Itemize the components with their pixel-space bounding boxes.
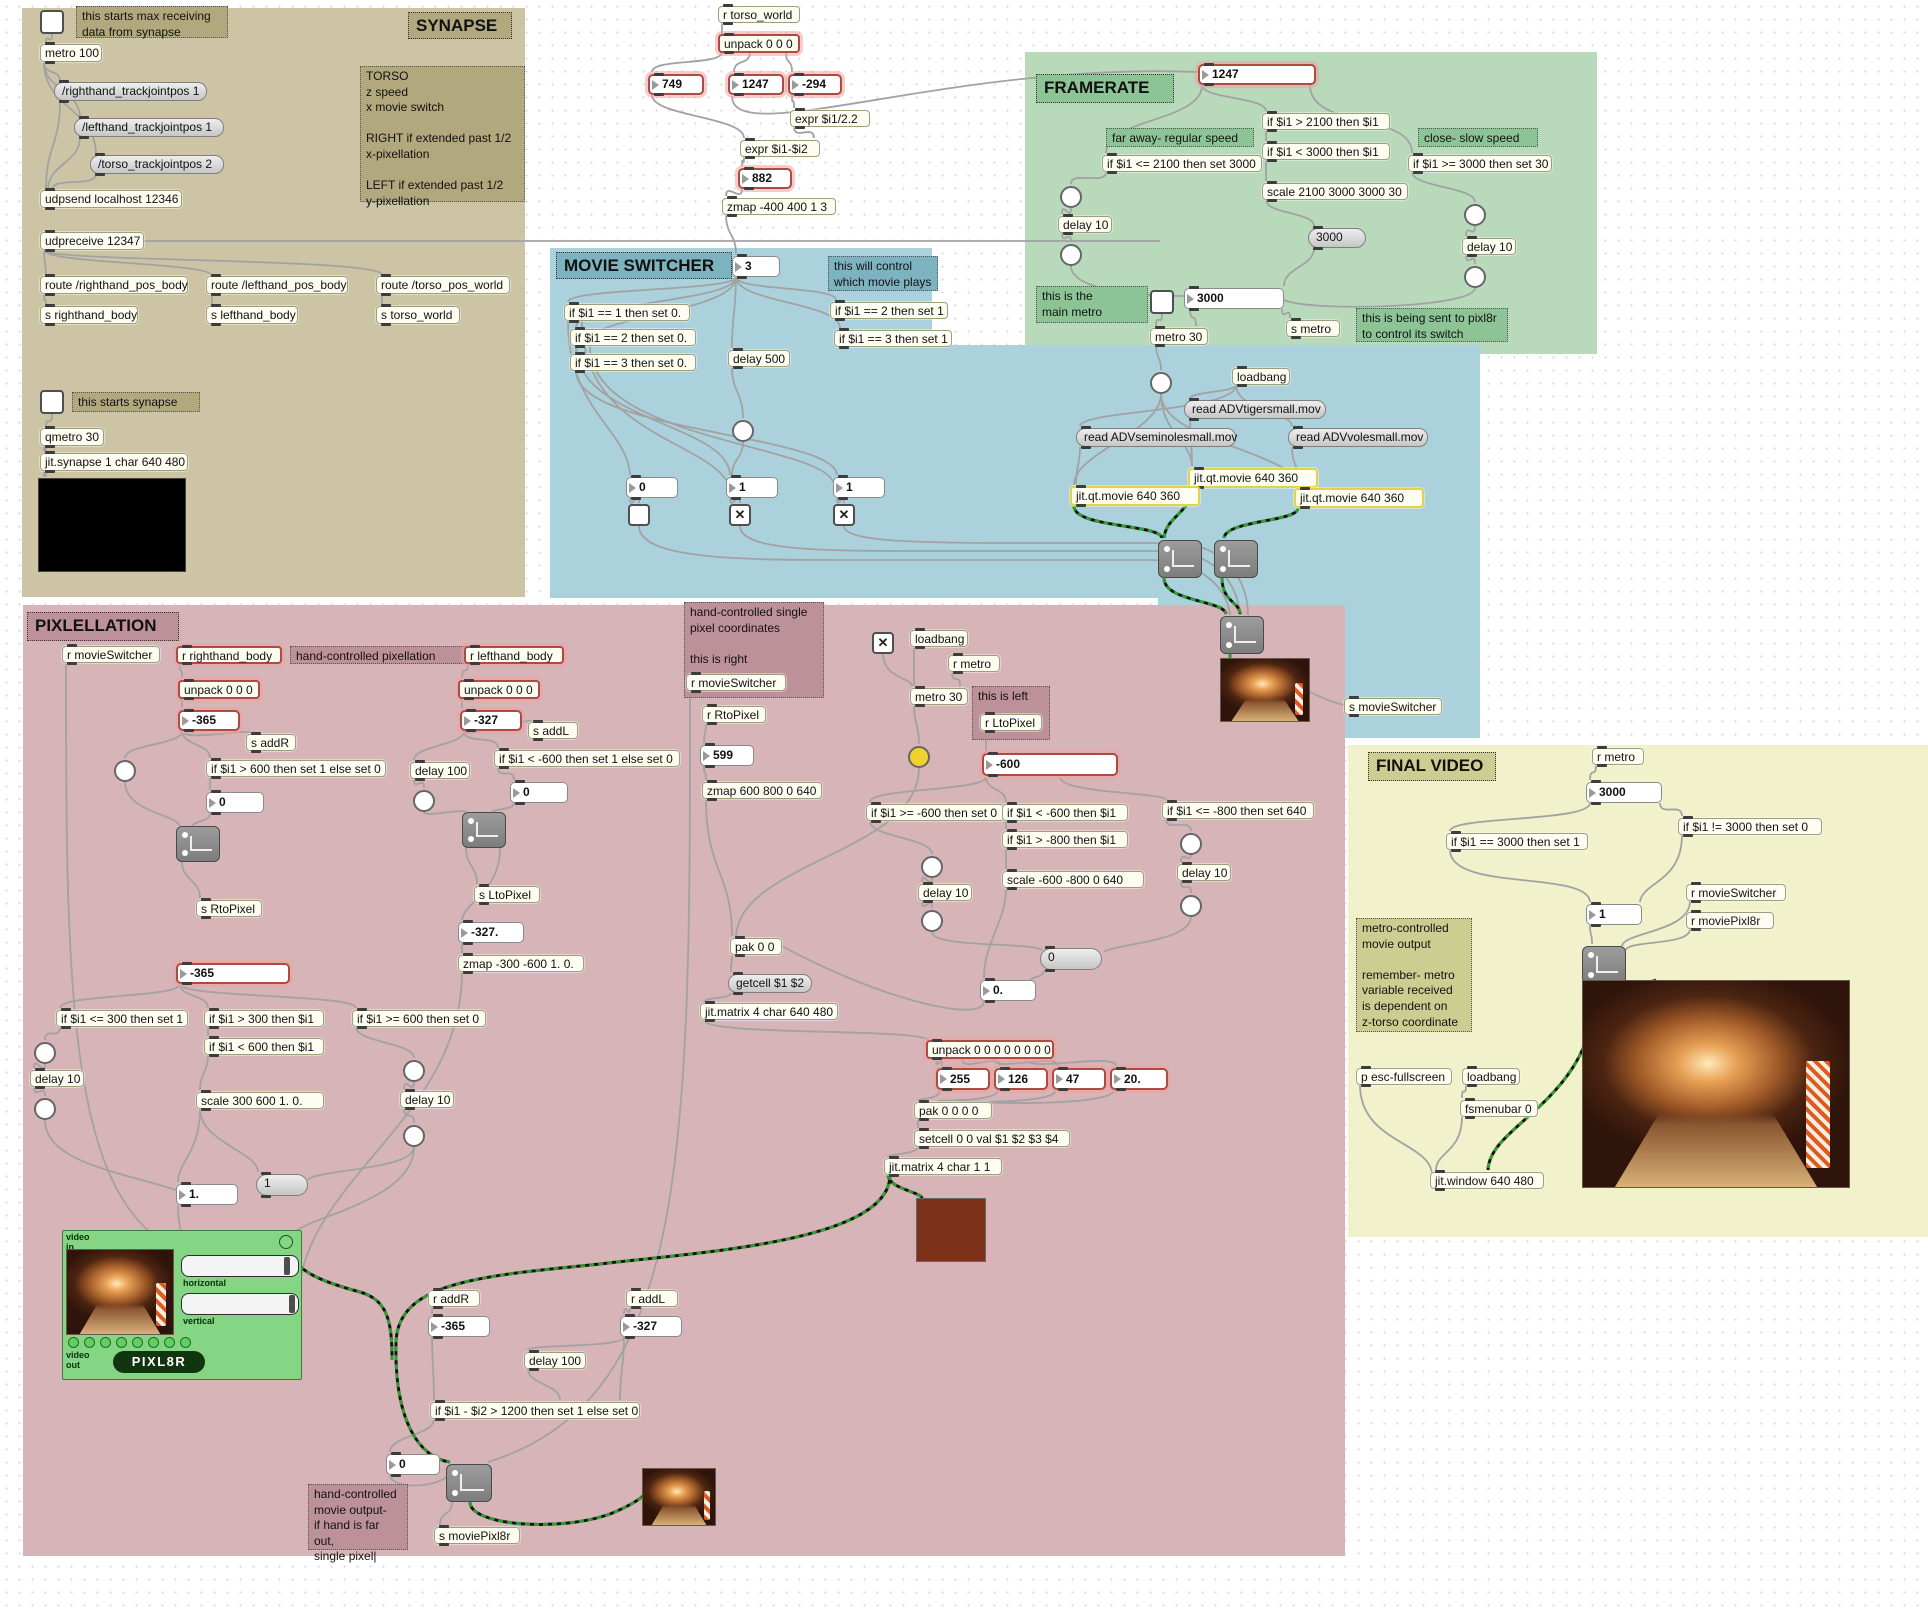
obj-route-torso[interactable]: route /torso_pos_world — [376, 276, 510, 294]
obj-fsmenubar[interactable]: fsmenubar 0 — [1460, 1100, 1538, 1117]
obj-delay10-b[interactable]: delay 10 — [400, 1091, 454, 1108]
num-599[interactable]: 599 — [700, 745, 754, 766]
obj-if-ge600[interactable]: if $i1 >= 600 then set 0 — [352, 1010, 486, 1027]
obj-zmap-400[interactable]: zmap -400 400 1 3 — [722, 198, 836, 215]
num-b[interactable]: 47 — [1052, 1068, 1106, 1090]
number-value: 0. — [993, 983, 1003, 998]
obj-delay10-fr-left[interactable]: delay 10 — [1058, 216, 1112, 233]
number-triangle-icon — [983, 986, 990, 996]
obj-pak-4[interactable]: pak 0 0 0 0 — [914, 1102, 992, 1119]
num-torso-z[interactable]: -294 — [788, 74, 842, 95]
number-value: 749 — [662, 77, 682, 92]
obj-s-movieswitcher[interactable]: s movieSwitcher — [1344, 698, 1442, 715]
num-torso-x[interactable]: 749 — [648, 74, 704, 95]
obj-s-lefthand-body[interactable]: s lefthand_body — [206, 306, 298, 324]
patcher-canvas: this starts max receiving data from syna… — [0, 0, 1928, 1608]
number-value: 882 — [752, 171, 772, 186]
obj-delay-500[interactable]: delay 500 — [728, 350, 790, 367]
pixl8r-brand-badge[interactable]: PIXL8R — [113, 1351, 205, 1373]
number-value: -327. — [471, 925, 498, 940]
number-value: 255 — [950, 1072, 970, 1087]
obj-delay10-fr-right[interactable]: delay 10 — [1462, 238, 1516, 255]
led-icon — [68, 1337, 79, 1348]
comment-main-metro: this is the main metro — [1036, 286, 1148, 323]
obj-r-movieswitcher-fv[interactable]: r movieSwitcher — [1686, 884, 1786, 901]
bang-circle-icon — [403, 1060, 425, 1082]
number-value: 1247 — [742, 77, 769, 92]
bang-px-1[interactable] — [114, 760, 136, 782]
bang-circle-icon — [114, 760, 136, 782]
obj-expr-div[interactable]: expr $i1/2.2 — [790, 110, 870, 127]
num-movie1-state[interactable]: 0 — [626, 477, 678, 498]
obj-p-esc-fullscreen[interactable]: p esc-fullscreen — [1356, 1068, 1452, 1085]
number-value: 599 — [713, 748, 733, 763]
number-triangle-icon — [986, 760, 993, 770]
msg-getcell[interactable]: getcell $1 $2 — [728, 974, 812, 993]
gate-right[interactable] — [176, 826, 220, 862]
num-lefthand-x[interactable]: -327 — [460, 710, 522, 731]
number-value: -365 — [441, 1319, 465, 1334]
obj-expr-sub[interactable]: expr $i1-$i2 — [740, 140, 820, 157]
bang-circle-icon — [34, 1042, 56, 1064]
obj-r-moviepixl8r-fv[interactable]: r moviePixl8r — [1686, 912, 1774, 929]
switch-movies-2[interactable] — [1214, 540, 1258, 578]
title-movie-switcher: MOVIE SWITCHER — [556, 252, 732, 279]
number-value: 47 — [1066, 1072, 1079, 1087]
obj-delay-100-b[interactable]: delay 100 — [524, 1352, 586, 1369]
obj-r-movieswitcher-px[interactable]: r movieSwitcher — [62, 646, 160, 663]
led-icon — [132, 1337, 143, 1348]
number-value: 1 — [1599, 907, 1606, 922]
toggle-start-max[interactable] — [40, 10, 64, 34]
pixl8r-horizontal-slider[interactable] — [181, 1255, 299, 1277]
bang-circle-icon — [1060, 244, 1082, 266]
num-m365-wide[interactable]: -365 — [176, 963, 290, 984]
obj-if-gt2100[interactable]: if $i1 > 2100 then $i1 — [1262, 113, 1390, 130]
obj-udpsend[interactable]: udpsend localhost 12346 — [40, 190, 182, 208]
msg-3000-pill[interactable]: 3000 — [1308, 228, 1366, 248]
number-triangle-icon — [792, 80, 799, 90]
number-value: 1 — [739, 480, 746, 495]
obj-if-le300[interactable]: if $i1 <= 300 then set 1 — [56, 1010, 188, 1027]
number-triangle-icon — [1202, 70, 1209, 80]
gate-route-icon — [460, 1474, 484, 1491]
comment-starts-synapse: this starts synapse — [72, 392, 200, 412]
msg-read-voles[interactable]: read ADVvolesmall.mov — [1288, 428, 1428, 447]
num-metro-rate[interactable]: 3000 — [1184, 288, 1284, 309]
number-value: 0 — [399, 1457, 406, 1472]
led-icon — [100, 1337, 111, 1348]
obj-r-movieswitcher-2[interactable]: r movieSwitcher — [686, 674, 786, 691]
number-triangle-icon — [729, 483, 736, 493]
obj-s-addr[interactable]: s addR — [246, 734, 296, 751]
num-metro-fv[interactable]: 3000 — [1586, 782, 1662, 803]
gate-route-icon — [1228, 550, 1250, 567]
obj-loadbang-movies[interactable]: loadbang — [1232, 368, 1290, 385]
swatch-pixel-color[interactable] — [916, 1198, 986, 1262]
obj-delay10-c[interactable]: delay 10 — [918, 884, 972, 901]
bang-circle-icon — [921, 910, 943, 932]
video-synapse-black — [38, 478, 186, 572]
number-triangle-icon — [735, 262, 742, 272]
number-triangle-icon — [629, 483, 636, 493]
number-value: 3000 — [1599, 785, 1626, 800]
bang-circle-icon — [732, 420, 754, 442]
number-value: 1 — [846, 480, 853, 495]
obj-qtmovie-3[interactable]: jit.qt.movie 640 360 — [1294, 488, 1424, 508]
number-triangle-icon — [1589, 910, 1596, 920]
num-r[interactable]: 255 — [936, 1068, 990, 1090]
obj-metro-30-px[interactable]: metro 30 — [910, 688, 968, 705]
pixl8r-device[interactable]: video inhorizontalverticalvideo outPIXL8… — [62, 1230, 302, 1380]
toggle-check-icon: ✕ — [839, 507, 850, 523]
obj-metro-30-fr[interactable]: metro 30 — [1150, 328, 1208, 345]
comment-hand-pixellation: hand-controlled pixellation — [290, 646, 476, 664]
number-triangle-icon — [464, 716, 471, 726]
pixl8r-video-in-preview[interactable] — [66, 1249, 174, 1335]
number-triangle-icon — [209, 798, 216, 808]
number-value: 1. — [189, 1187, 199, 1202]
obj-if-gt600[interactable]: if $i1 > 600 then set 1 else set 0 — [206, 760, 386, 777]
switch-movies-3[interactable] — [1220, 616, 1264, 654]
number-value: -365 — [190, 966, 214, 981]
pixl8r-vertical-slider[interactable] — [181, 1293, 299, 1315]
num-torso-y[interactable]: 1247 — [728, 74, 784, 95]
obj-s-rtopixel[interactable]: s RtoPixel — [196, 900, 262, 917]
num-m327-dot[interactable]: -327. — [458, 922, 524, 943]
comment-far-away: far away- regular speed — [1106, 128, 1254, 147]
bang-circle-icon — [1060, 186, 1082, 208]
bang-circle-icon — [921, 856, 943, 878]
obj-r-righthand[interactable]: r righthand_body — [176, 646, 282, 664]
number-triangle-icon — [179, 1190, 186, 1200]
obj-qmetro-30[interactable]: qmetro 30 — [40, 428, 104, 446]
number-triangle-icon — [1589, 788, 1596, 798]
toggle-start-synapse[interactable] — [40, 390, 64, 414]
bang-px-2[interactable] — [413, 790, 435, 812]
obj-if-gtm800[interactable]: if $i1 > -800 then $i1 — [1002, 831, 1128, 848]
obj-if-gem600[interactable]: if $i1 >= -600 then set 0 — [866, 804, 1004, 821]
bang-px-10[interactable] — [1180, 895, 1202, 917]
bang-ms[interactable] — [732, 420, 754, 442]
obj-jitwindow[interactable]: jit.window 640 480 — [1430, 1172, 1544, 1189]
comment-close-slow: close- slow speed — [1418, 128, 1538, 147]
obj-setcell[interactable]: setcell 0 0 val $1 $2 $3 $4 — [914, 1130, 1070, 1147]
number-value: 0 — [523, 785, 530, 800]
number-triangle-icon — [1114, 1074, 1121, 1084]
obj-r-torso-world[interactable]: r torso_world — [718, 6, 800, 23]
obj-unpack-8[interactable]: unpack 0 0 0 0 0 0 0 0 — [926, 1040, 1054, 1059]
obj-route-righthand[interactable]: route /righthand_pos_body — [40, 276, 188, 294]
num-gate-r[interactable]: 0 — [206, 792, 264, 813]
obj-if-eq2-set1[interactable]: if $i1 == 2 then set 1 — [830, 302, 948, 319]
number-value: 3000 — [1197, 291, 1224, 306]
num-gate-fv[interactable]: 1 — [1586, 904, 1642, 925]
number-value: -600 — [996, 757, 1020, 772]
comment-metro-output: metro-controlled movie output remember- … — [1356, 918, 1472, 1032]
bang-circle-icon — [1180, 895, 1202, 917]
obj-loadbang-px[interactable]: loadbang — [910, 630, 968, 647]
obj-r-lefthand[interactable]: r lefthand_body — [464, 646, 564, 664]
bang-circle-icon — [908, 746, 930, 768]
number-triangle-icon — [389, 1460, 396, 1470]
bang-px-7[interactable] — [921, 856, 943, 878]
obj-loadbang-fv[interactable]: loadbang — [1462, 1068, 1520, 1085]
toggle-movie1[interactable] — [628, 504, 650, 526]
number-triangle-icon — [180, 969, 187, 979]
obj-if-ltm600-else[interactable]: if $i1 < -600 then set 1 else set 0 — [494, 750, 680, 767]
number-triangle-icon — [940, 1074, 947, 1084]
number-triangle-icon — [732, 80, 739, 90]
msg-pill-0[interactable]: 0 — [1040, 948, 1102, 970]
gate-route-icon — [1172, 550, 1194, 567]
obj-if-eq3000[interactable]: if $i1 == 3000 then set 1 — [1446, 833, 1588, 850]
obj-if-lt3000[interactable]: if $i1 < 3000 then $i1 — [1262, 143, 1390, 160]
obj-delay-100-a[interactable]: delay 100 — [410, 762, 470, 779]
bang-yellow[interactable] — [908, 746, 930, 768]
obj-scale-300[interactable]: scale 300 600 1. 0. — [196, 1092, 324, 1109]
gate-route-icon — [476, 822, 498, 837]
num-framerate-z[interactable]: 1247 — [1198, 64, 1316, 85]
number-triangle-icon — [998, 1074, 1005, 1084]
number-triangle-icon — [182, 716, 189, 726]
slider-thumb[interactable] — [289, 1295, 295, 1313]
num-m600-wide[interactable]: -600 — [982, 753, 1118, 776]
number-value: 126 — [1008, 1072, 1028, 1087]
bang-px-9[interactable] — [1180, 833, 1202, 855]
obj-unpack-right[interactable]: unpack 0 0 0 — [458, 680, 540, 699]
obj-r-addl[interactable]: r addL — [626, 1290, 678, 1307]
obj-if-eq3-set0[interactable]: if $i1 == 3 then set 0. — [570, 354, 696, 371]
obj-s-addl[interactable]: s addL — [528, 722, 578, 739]
num-1-dot[interactable]: 1. — [176, 1184, 238, 1205]
obj-s-ltopixel[interactable]: s LtoPixel — [474, 886, 540, 903]
comment-torso-notes: TORSO z speed x movie switch RIGHT if ex… — [360, 66, 525, 202]
number-triangle-icon — [742, 174, 749, 184]
title-final-video: FINAL VIDEO — [1368, 752, 1496, 781]
num-addr[interactable]: -365 — [428, 1316, 490, 1337]
bang-px-5[interactable] — [403, 1060, 425, 1082]
title-pixlellation: PIXLELLATION — [27, 612, 179, 641]
led-icon — [164, 1337, 175, 1348]
obj-scale-2100[interactable]: scale 2100 3000 3000 30 — [1262, 183, 1408, 200]
bang-px-8[interactable] — [921, 910, 943, 932]
led-icon — [180, 1337, 191, 1348]
obj-pak-2[interactable]: pak 0 0 — [730, 938, 782, 955]
bang-circle-icon — [413, 790, 435, 812]
gate-left[interactable] — [462, 812, 506, 848]
bang-px-3[interactable] — [34, 1042, 56, 1064]
video-movie-preview — [1220, 658, 1310, 722]
bang-movies[interactable] — [1150, 372, 1172, 394]
obj-udpreceive[interactable]: udpreceive 12347 — [40, 232, 144, 250]
gate-final[interactable] — [1582, 946, 1626, 984]
obj-r-metro-fv[interactable]: r metro — [1592, 748, 1644, 765]
bang-fr-1[interactable] — [1060, 186, 1082, 208]
msg-torso-trackjointpos[interactable]: /torso_trackjointpos 2 — [90, 155, 224, 174]
comment-this-is-left: this is left — [972, 686, 1050, 740]
obj-if-gt300[interactable]: if $i1 > 300 then $i1 — [204, 1010, 324, 1027]
obj-s-torso-world[interactable]: s torso_world — [376, 306, 460, 324]
obj-if-eq3-set1[interactable]: if $i1 == 3 then set 1 — [834, 330, 952, 347]
bang-px-4[interactable] — [34, 1098, 56, 1120]
number-value: 3 — [745, 259, 752, 274]
obj-if-sub-1200[interactable]: if $i1 - $i2 > 1200 then set 1 else set … — [430, 1402, 640, 1419]
obj-jitmatrix-640[interactable]: jit.matrix 4 char 640 480 — [700, 1003, 838, 1020]
msg-lefthand-trackjointpos[interactable]: /lefthand_trackjointpos 1 — [74, 118, 224, 137]
num-gate-l[interactable]: 0 — [510, 782, 568, 803]
number-value: 1247 — [1212, 67, 1239, 82]
bang-circle-icon — [1150, 372, 1172, 394]
obj-qtmovie-2[interactable]: jit.qt.movie 640 360 — [1070, 486, 1200, 506]
gate-bottom[interactable] — [446, 1464, 492, 1502]
obj-r-rtopixel[interactable]: r RtoPixel — [702, 706, 766, 723]
bang-px-6[interactable] — [403, 1125, 425, 1147]
bang-circle-icon — [1464, 266, 1486, 288]
toggle-check-icon: ✕ — [735, 507, 746, 523]
msg-pill-1[interactable]: 1 — [256, 1174, 308, 1196]
toggle-check-icon: ✕ — [878, 635, 889, 651]
obj-if-eq2-set0[interactable]: if $i1 == 2 then set 0. — [570, 329, 696, 346]
led-icon — [148, 1337, 159, 1348]
num-g[interactable]: 126 — [994, 1068, 1048, 1090]
toggle-movie2[interactable]: ✕ — [729, 504, 751, 526]
toggle-main-metro[interactable] — [1150, 290, 1174, 314]
obj-if-eq1-set0[interactable]: if $i1 == 1 then set 0. — [564, 304, 690, 321]
obj-if-ge3000[interactable]: if $i1 >= 3000 then set 30 — [1408, 155, 1552, 172]
video-pixl8r-preview — [642, 1468, 716, 1526]
bang-circle-icon — [34, 1098, 56, 1120]
comment-starts-max: this starts max receiving data from syna… — [76, 6, 228, 38]
led-icon — [84, 1337, 95, 1348]
obj-if-lem800[interactable]: if $i1 <= -800 then set 640 — [1162, 802, 1314, 819]
obj-jit-synapse[interactable]: jit.synapse 1 char 640 480 — [40, 453, 188, 471]
obj-zmap-left[interactable]: zmap -300 -600 1. 0. — [458, 955, 584, 972]
obj-jitmatrix-11[interactable]: jit.matrix 4 char 1 1 — [884, 1158, 1002, 1175]
switch-movies-1[interactable] — [1158, 540, 1202, 578]
bang-fr-4[interactable] — [1464, 266, 1486, 288]
pixl8r-vertical-label: vertical — [183, 1317, 215, 1327]
number-triangle-icon — [703, 751, 710, 761]
obj-s-righthand-body[interactable]: s righthand_body — [40, 306, 138, 324]
number-triangle-icon — [431, 1322, 438, 1332]
num-a[interactable]: 20. — [1110, 1068, 1168, 1090]
led-icon — [116, 1337, 127, 1348]
obj-s-metro[interactable]: s metro — [1286, 320, 1340, 337]
msg-read-tigers[interactable]: read ADVtigersmall.mov — [1184, 400, 1326, 419]
obj-unpack-3[interactable]: unpack 0 0 0 — [718, 34, 800, 53]
pixl8r-led-row — [68, 1337, 191, 1348]
number-value: -294 — [802, 77, 826, 92]
bang-fr-2[interactable] — [1060, 244, 1082, 266]
msg-read-seminoles[interactable]: read ADVseminolesmall.mov — [1076, 428, 1236, 447]
number-triangle-icon — [836, 483, 843, 493]
num-righthand-x[interactable]: -365 — [178, 710, 240, 731]
number-triangle-icon — [1187, 294, 1194, 304]
pixl8r-outlet-icon — [279, 1235, 293, 1249]
number-triangle-icon — [623, 1322, 630, 1332]
num-movie-select[interactable]: 3 — [732, 256, 780, 277]
number-triangle-icon — [513, 788, 520, 798]
title-synapse: SYNAPSE — [408, 12, 512, 39]
msg-righthand-trackjointpos[interactable]: /righthand_trackjointpos 1 — [54, 82, 207, 101]
obj-r-ltopixel[interactable]: r LtoPixel — [980, 714, 1042, 731]
obj-delay10-a[interactable]: delay 10 — [30, 1070, 84, 1087]
number-value: 0 — [639, 480, 646, 495]
number-triangle-icon — [652, 80, 659, 90]
obj-route-lefthand[interactable]: route /lefthand_pos_body — [206, 276, 348, 294]
gate-route-icon — [190, 836, 212, 851]
toggle-movie3[interactable]: ✕ — [833, 504, 855, 526]
gate-route-icon — [1234, 626, 1256, 643]
number-value: 0 — [219, 795, 226, 810]
obj-unpack-left[interactable]: unpack 0 0 0 — [178, 680, 260, 699]
bang-circle-icon — [1180, 833, 1202, 855]
obj-if-ltm600[interactable]: if $i1 < -600 then $i1 — [1002, 804, 1128, 821]
number-triangle-icon — [461, 928, 468, 938]
obj-if-lt600[interactable]: if $i1 < 600 then $i1 — [204, 1038, 324, 1055]
number-value: -327 — [474, 713, 498, 728]
number-value: 20. — [1124, 1072, 1141, 1087]
bang-fr-3[interactable] — [1464, 204, 1486, 226]
comment-sent-pixl8r: this is being sent to pixl8r to control … — [1356, 308, 1508, 342]
num-882[interactable]: 882 — [738, 168, 792, 189]
toggle-px[interactable]: ✕ — [872, 632, 894, 654]
obj-if-le2100[interactable]: if $i1 <= 2100 then set 3000 — [1102, 155, 1262, 172]
obj-qtmovie-1[interactable]: jit.qt.movie 640 360 — [1188, 468, 1318, 488]
number-value: -365 — [192, 713, 216, 728]
num-movie2-state[interactable]: 1 — [726, 477, 778, 498]
slider-thumb[interactable] — [284, 1257, 290, 1275]
pixl8r-video-out-label: video out — [66, 1351, 90, 1371]
obj-s-moviepixl8r[interactable]: s moviePixl8r — [434, 1527, 520, 1544]
comment-will-control: this will control which movie plays — [828, 256, 938, 291]
obj-delay10-d[interactable]: delay 10 — [1177, 864, 1231, 881]
obj-metro-100[interactable]: metro 100 — [40, 44, 102, 62]
obj-scale-m600[interactable]: scale -600 -800 0 640 — [1002, 871, 1144, 888]
pixl8r-horizontal-label: horizontal — [183, 1279, 226, 1289]
number-triangle-icon — [1056, 1074, 1063, 1084]
num-addl[interactable]: -327 — [620, 1316, 682, 1337]
obj-if-ne3000[interactable]: if $i1 != 3000 then set 0 — [1678, 818, 1822, 835]
title-framerate: FRAMERATE — [1036, 74, 1174, 103]
obj-zmap-right[interactable]: zmap 600 800 0 640 — [702, 782, 822, 799]
gate-route-icon — [1596, 956, 1618, 973]
obj-r-metro-px[interactable]: r metro — [948, 655, 1000, 672]
comment-hand-output: hand-controlled movie output- if hand is… — [308, 1484, 408, 1550]
bang-circle-icon — [1464, 204, 1486, 226]
number-value: -327 — [633, 1319, 657, 1334]
video-final-output — [1582, 980, 1850, 1188]
num-gate-out[interactable]: 0 — [386, 1454, 440, 1475]
obj-r-addr[interactable]: r addR — [428, 1290, 480, 1307]
num-movie3-state[interactable]: 1 — [833, 477, 885, 498]
num-0-dot[interactable]: 0. — [980, 980, 1036, 1001]
bang-circle-icon — [403, 1125, 425, 1147]
